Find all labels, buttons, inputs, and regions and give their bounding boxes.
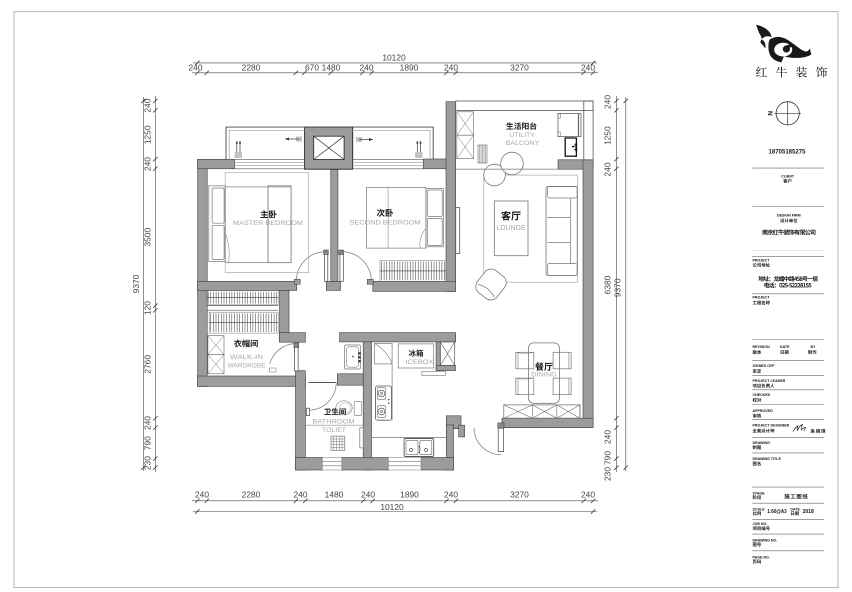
svg-text:790: 790 (143, 436, 153, 450)
svg-text:BATHROOM: BATHROOM (313, 419, 355, 426)
svg-text:240: 240 (195, 490, 209, 500)
svg-text:2018: 2018 (803, 509, 814, 515)
svg-text:REVISION: REVISION (753, 345, 771, 349)
svg-text:240: 240 (603, 95, 613, 109)
svg-text:DRAWING TITLE: DRAWING TITLE (753, 457, 782, 461)
svg-text:SECOND BEDROOM: SECOND BEDROOM (350, 220, 421, 227)
svg-text:1480: 1480 (325, 490, 344, 500)
svg-text:APPROVED: APPROVED (753, 409, 774, 413)
svg-text:DATE: DATE (780, 345, 790, 349)
svg-text:1:60@A3: 1:60@A3 (767, 509, 787, 515)
svg-text:WALK-IN: WALK-IN (230, 354, 263, 361)
svg-text:18705185275: 18705185275 (769, 149, 806, 156)
svg-text:DATE: DATE (790, 507, 800, 511)
svg-text:STAGE: STAGE (753, 491, 766, 495)
svg-text:240: 240 (581, 63, 595, 73)
svg-text:6380: 6380 (603, 275, 613, 294)
svg-text:120: 120 (143, 301, 153, 315)
svg-text:1890: 1890 (400, 63, 419, 73)
svg-text:2280: 2280 (242, 490, 261, 500)
svg-text:3270: 3270 (510, 63, 529, 73)
svg-text:DINING: DINING (531, 372, 557, 379)
svg-text:240: 240 (143, 416, 153, 430)
svg-text:10120: 10120 (380, 502, 404, 512)
svg-text:240: 240 (361, 490, 375, 500)
svg-text:230: 230 (143, 456, 153, 470)
svg-text:1890: 1890 (400, 490, 419, 500)
svg-text:2280: 2280 (242, 63, 261, 73)
svg-text:DRAWING NO.: DRAWING NO. (753, 539, 778, 543)
svg-text:MASTER BEDROOM: MASTER BEDROOM (233, 220, 303, 227)
svg-text:240: 240 (603, 162, 613, 176)
svg-text:240: 240 (143, 157, 153, 171)
svg-text:PROJECT LEADER: PROJECT LEADER (753, 379, 786, 383)
svg-text:LOUNGE: LOUNGE (497, 225, 526, 232)
svg-text:CLIENT: CLIENT (781, 174, 795, 178)
svg-text:PROJECT: PROJECT (753, 258, 771, 262)
svg-text:240: 240 (444, 490, 458, 500)
svg-text:DRAWING: DRAWING (753, 441, 771, 445)
svg-text:SIGNED OFF: SIGNED OFF (753, 364, 776, 368)
svg-text:3500: 3500 (143, 228, 153, 247)
svg-text:230: 230 (603, 467, 613, 481)
svg-text:790: 790 (603, 451, 613, 465)
svg-text:240: 240 (603, 430, 613, 444)
svg-text:240: 240 (360, 63, 374, 73)
svg-text:BALCONY: BALCONY (506, 140, 540, 147)
svg-text:PAGE NO.: PAGE NO. (753, 556, 770, 560)
svg-text:UTILITY: UTILITY (509, 132, 535, 139)
svg-text:BY: BY (811, 345, 817, 349)
svg-text:240: 240 (294, 490, 308, 500)
svg-text:670: 670 (305, 63, 319, 73)
svg-text:9370: 9370 (613, 278, 623, 297)
svg-text:2760: 2760 (143, 355, 153, 374)
svg-text:JOB NO.: JOB NO. (753, 522, 768, 526)
svg-text:10120: 10120 (382, 52, 406, 62)
svg-text:CHECKED: CHECKED (753, 393, 771, 397)
svg-text:PROJECT DESIGNER: PROJECT DESIGNER (753, 424, 790, 428)
svg-text:1480: 1480 (322, 63, 341, 73)
svg-text:240: 240 (581, 490, 595, 500)
svg-text:1250: 1250 (603, 126, 613, 145)
svg-text:1250: 1250 (143, 125, 153, 144)
svg-text:N: N (767, 111, 774, 116)
svg-text:240: 240 (444, 63, 458, 73)
svg-text:3270: 3270 (510, 490, 529, 500)
svg-text:ICEBOX: ICEBOX (406, 359, 435, 366)
svg-text:PROJECT: PROJECT (753, 296, 771, 300)
svg-text:DESIGN FIRM: DESIGN FIRM (777, 213, 801, 217)
svg-text:SCALE: SCALE (753, 507, 766, 511)
svg-text:TOLIET: TOLIET (322, 427, 346, 434)
svg-text:9370: 9370 (131, 274, 141, 293)
svg-text:WARDROBE: WARDROBE (228, 363, 267, 370)
